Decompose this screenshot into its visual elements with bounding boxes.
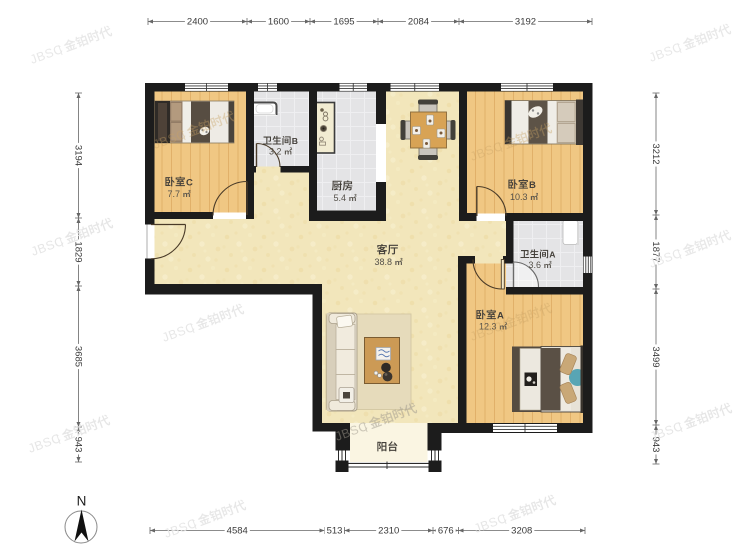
svg-text:3685: 3685 xyxy=(72,346,83,367)
svg-text:N: N xyxy=(77,494,87,509)
svg-text:3192: 3192 xyxy=(515,17,536,28)
svg-text:C: C xyxy=(186,178,193,189)
svg-text:1829: 1829 xyxy=(72,241,83,262)
svg-text:513: 513 xyxy=(327,526,343,537)
svg-text:1600: 1600 xyxy=(268,17,289,28)
svg-text:2310: 2310 xyxy=(378,526,399,537)
svg-text:3499: 3499 xyxy=(650,346,661,367)
svg-text:3208: 3208 xyxy=(511,526,532,537)
svg-text:1695: 1695 xyxy=(333,17,354,28)
svg-text:676: 676 xyxy=(438,526,454,537)
svg-text:943: 943 xyxy=(72,437,83,453)
svg-text:5.4: 5.4 xyxy=(334,193,347,203)
svg-text:A: A xyxy=(549,250,555,260)
svg-text:3.6: 3.6 xyxy=(529,260,542,270)
svg-text:B: B xyxy=(529,180,536,191)
svg-text:3194: 3194 xyxy=(72,145,83,166)
svg-text:38.8: 38.8 xyxy=(375,257,393,267)
svg-text:B: B xyxy=(292,136,298,146)
svg-text:2400: 2400 xyxy=(187,17,208,28)
svg-text:10.3: 10.3 xyxy=(510,192,528,202)
svg-text:4584: 4584 xyxy=(227,526,248,537)
svg-text:3212: 3212 xyxy=(650,143,661,164)
svg-text:7.7: 7.7 xyxy=(168,189,181,199)
svg-text:3.2: 3.2 xyxy=(269,147,282,157)
svg-text:2084: 2084 xyxy=(408,17,429,28)
